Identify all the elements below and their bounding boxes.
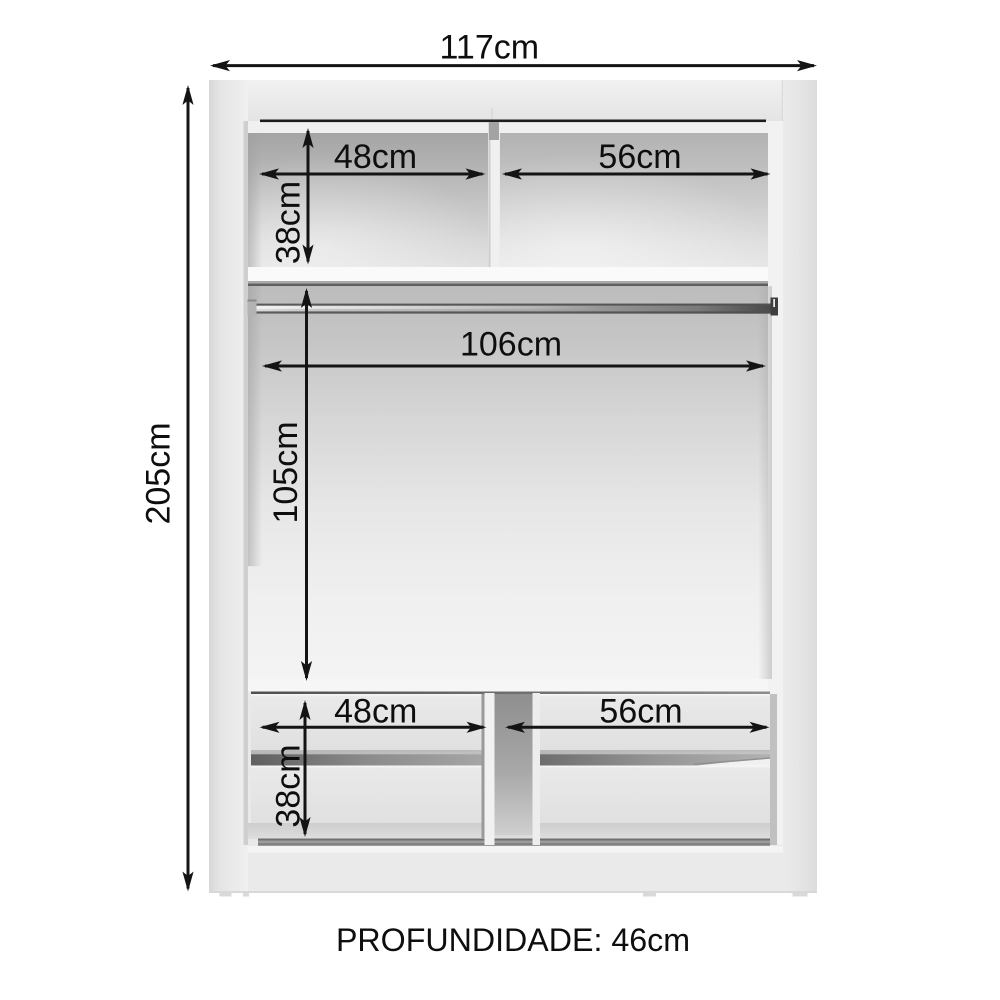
svg-text:38cm: 38cm [270,744,308,827]
svg-text:48cm: 48cm [334,138,417,176]
svg-text:56cm: 56cm [599,693,682,731]
svg-text:205cm: 205cm [140,422,178,524]
svg-text:38cm: 38cm [270,181,308,264]
svg-text:117cm: 117cm [440,28,540,66]
svg-text:105cm: 105cm [267,421,305,523]
svg-text:PROFUNDIDADE: 46cm: PROFUNDIDADE: 46cm [336,922,690,958]
svg-text:56cm: 56cm [598,138,681,176]
svg-text:48cm: 48cm [334,693,417,731]
svg-text:106cm: 106cm [460,325,562,363]
